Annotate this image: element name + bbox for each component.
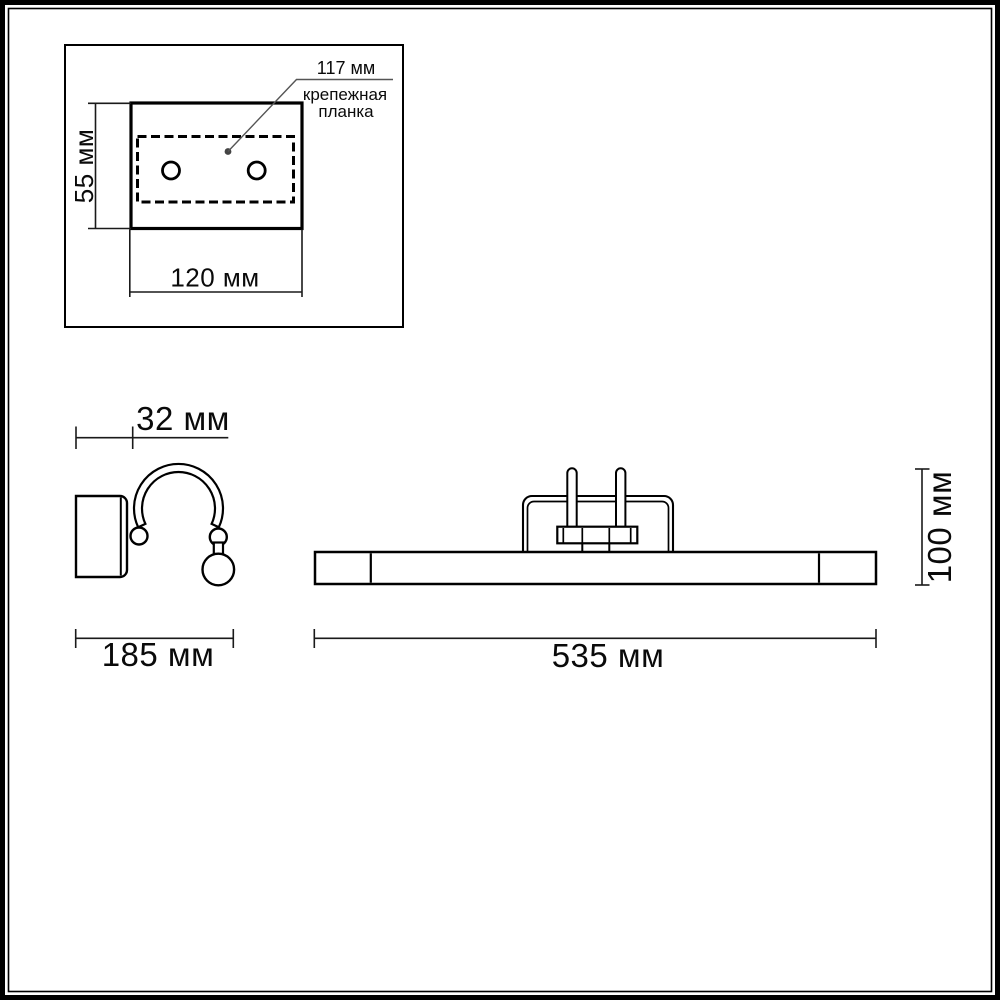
dimension-55mm: 55 мм xyxy=(69,103,131,228)
dimension-label-100mm: 100 мм xyxy=(921,471,958,584)
mounting-plate-outline xyxy=(131,103,302,229)
lamp-bar xyxy=(315,552,876,584)
curved-arm xyxy=(134,464,223,527)
lamp-head-ball xyxy=(203,554,235,586)
adjuster-block xyxy=(557,527,637,544)
dimension-label-535mm: 535 мм xyxy=(552,637,665,674)
side-view: 32 мм 185 мм xyxy=(76,400,234,673)
dimension-label-120mm: 120 мм xyxy=(170,263,259,293)
dimension-label-55mm: 55 мм xyxy=(69,129,99,203)
dimension-185mm: 185 мм xyxy=(76,629,234,673)
dimension-120mm: 120 мм xyxy=(130,230,302,298)
screw-hole-right xyxy=(248,162,265,179)
mounting-plate-inset: 117 мм крепежная планка 55 мм 120 мм xyxy=(65,45,403,327)
dimension-535mm: 535 мм xyxy=(314,629,876,674)
ball-joint-left xyxy=(131,528,148,545)
suspension-rod-left xyxy=(567,468,576,529)
callout-value-label: 117 мм xyxy=(317,58,375,78)
suspension-rod-right xyxy=(616,468,625,529)
dimension-100mm: 100 мм xyxy=(915,469,958,585)
technical-drawing-page: 117 мм крепежная планка 55 мм 120 мм 32 … xyxy=(0,0,1000,1000)
drawing-canvas: 117 мм крепежная планка 55 мм 120 мм 32 … xyxy=(0,0,1000,1000)
dimension-32mm: 32 мм xyxy=(76,400,230,449)
dimension-label-32mm: 32 мм xyxy=(136,400,230,437)
dimension-label-185mm: 185 мм xyxy=(102,636,215,673)
callout-text-line2: планка xyxy=(318,102,374,121)
wall-mount-box xyxy=(76,496,127,577)
screw-hole-left xyxy=(163,162,180,179)
front-view: 535 мм 100 мм xyxy=(314,468,958,674)
